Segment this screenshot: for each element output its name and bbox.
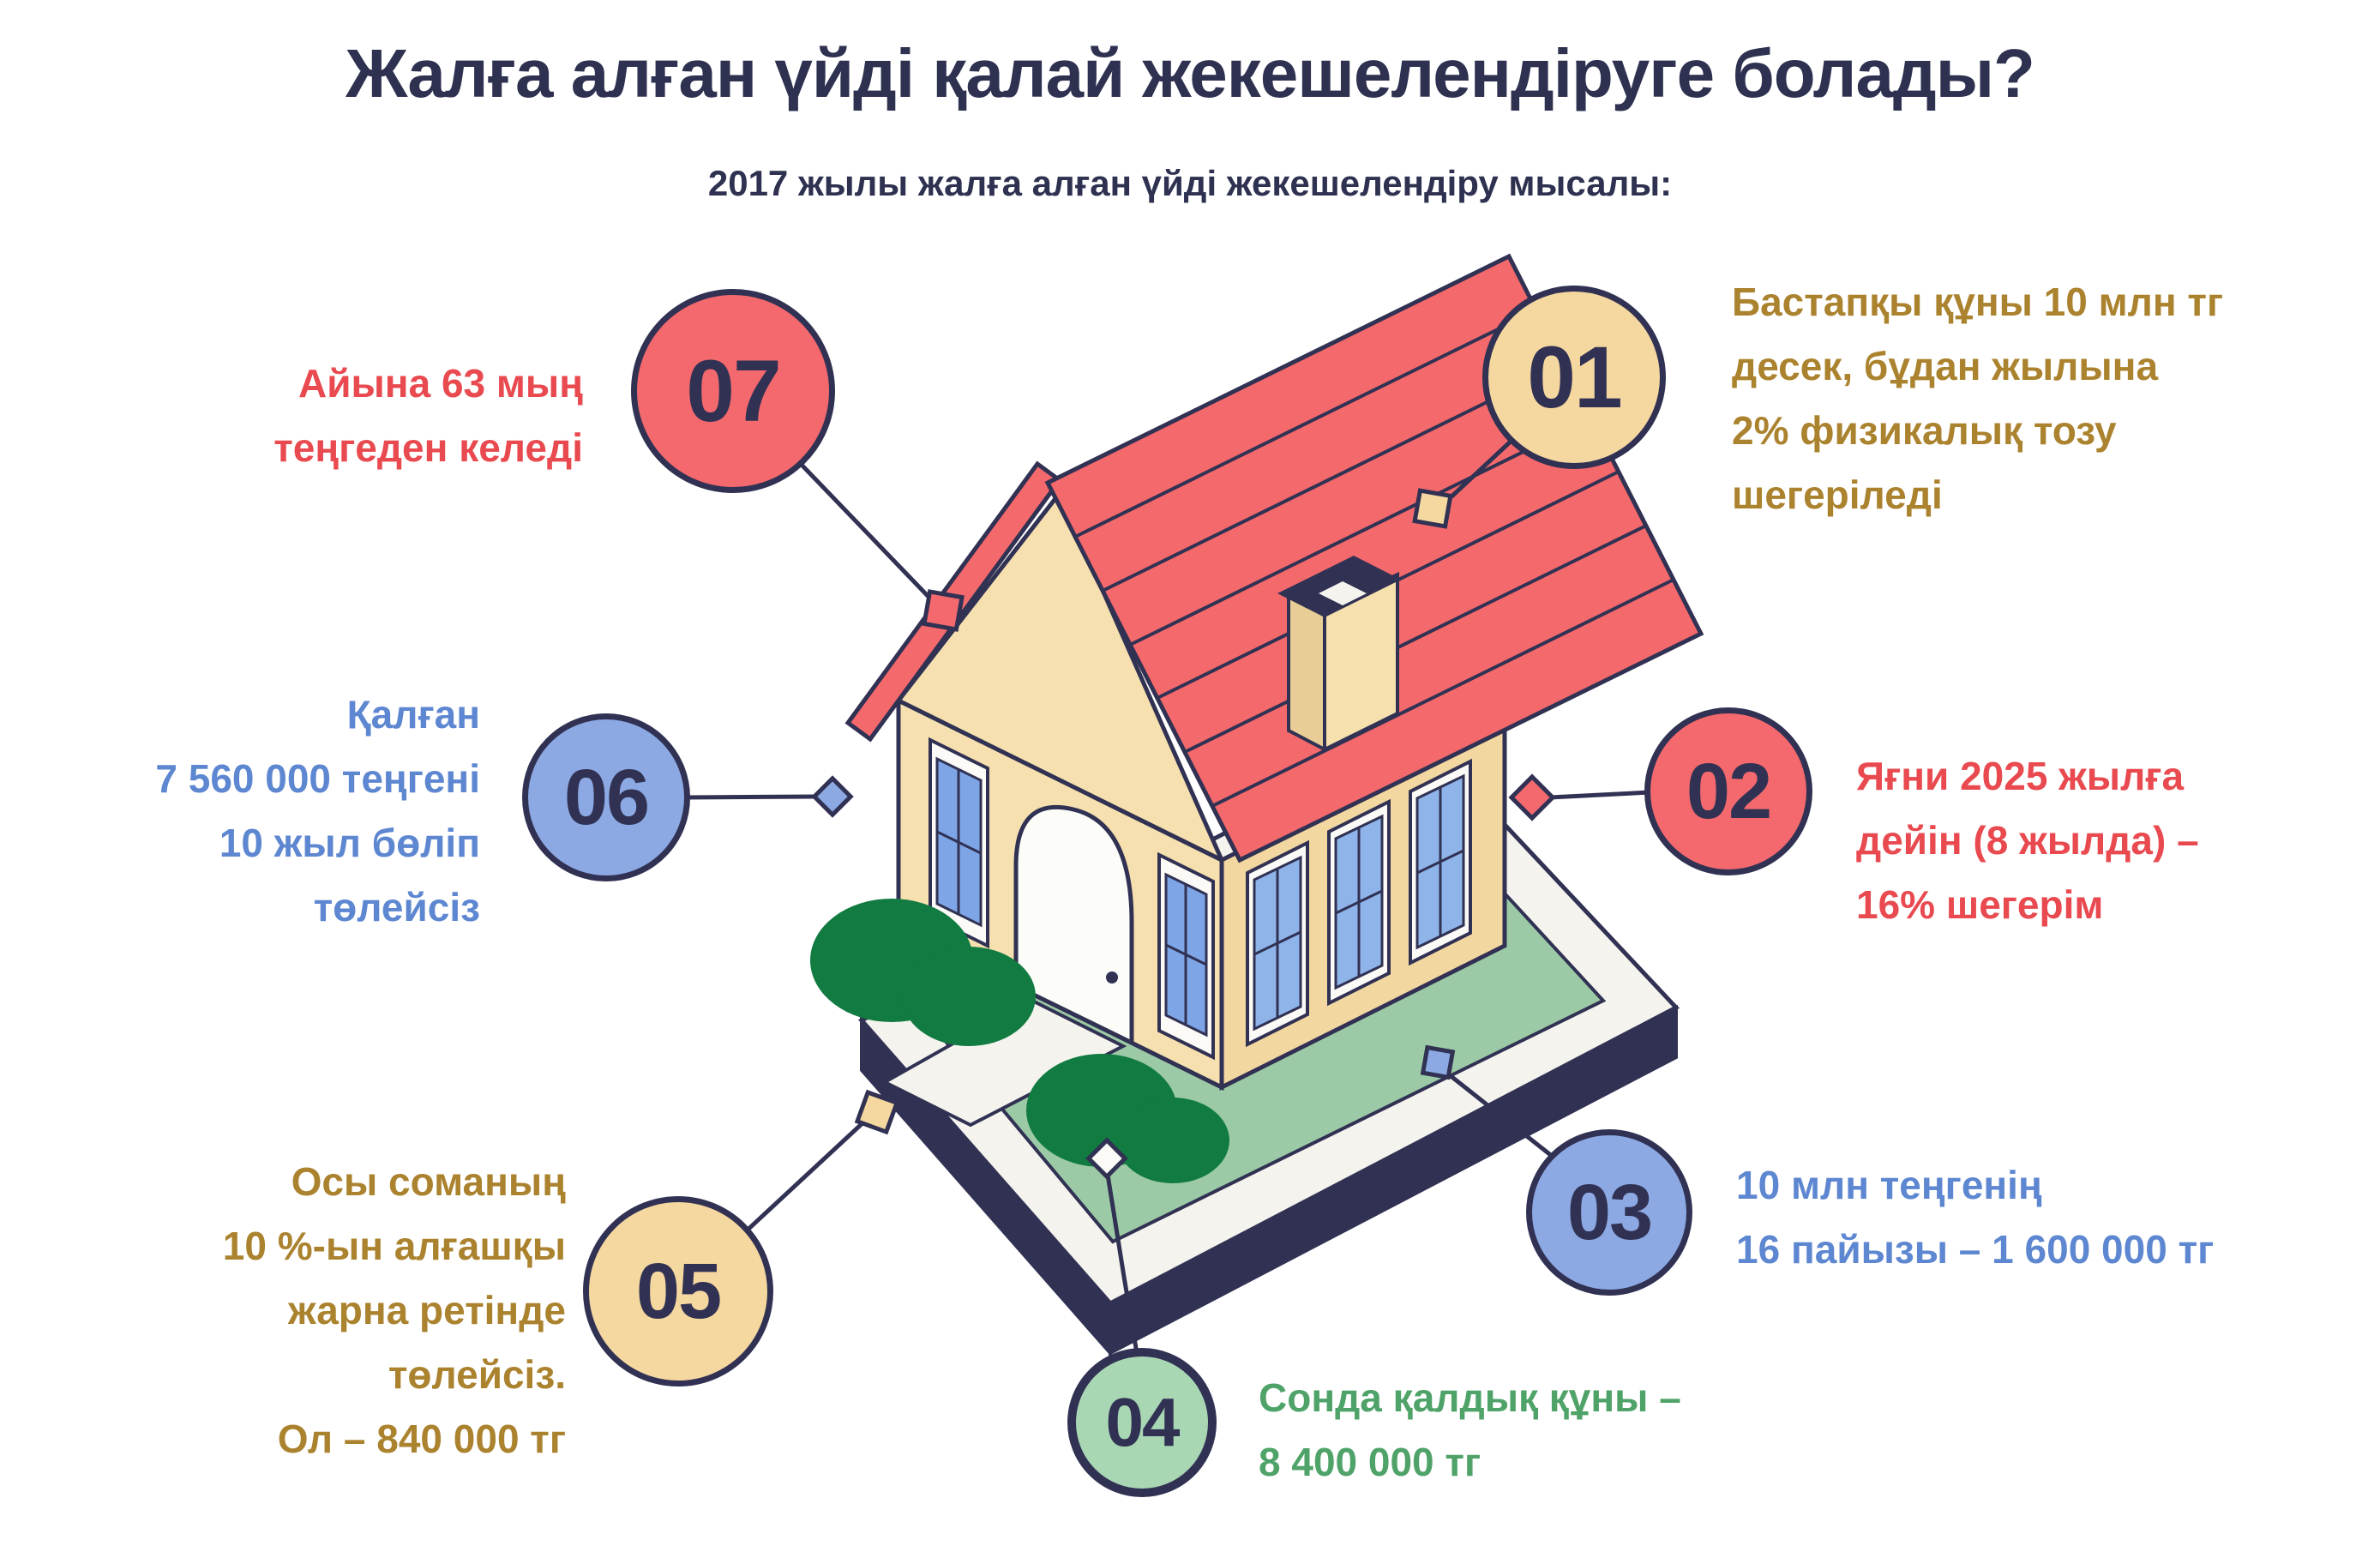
marker-06-diamond-icon: [814, 779, 850, 815]
bush-front-lobe: [1116, 1098, 1229, 1183]
marker-03-square-icon: [1423, 1048, 1453, 1078]
marker-02-diamond-icon: [1512, 777, 1553, 818]
window-right-1: [1247, 843, 1307, 1044]
connector-02: [1550, 792, 1650, 797]
connector-05: [745, 1122, 863, 1232]
window-right-3: [1410, 761, 1470, 963]
door-knob: [1106, 971, 1118, 984]
marker-07-square-icon: [924, 592, 962, 629]
connector-06: [686, 797, 817, 797]
bush-left-lobe: [902, 947, 1036, 1046]
chimney-left-face: [1289, 592, 1325, 749]
window-right-2: [1329, 802, 1389, 1003]
window-left-2: [1159, 855, 1213, 1057]
house-illustration: [0, 0, 2380, 1558]
connector-07: [800, 463, 930, 599]
marker-01-square-icon: [1415, 490, 1451, 526]
chimney: [1277, 556, 1401, 749]
